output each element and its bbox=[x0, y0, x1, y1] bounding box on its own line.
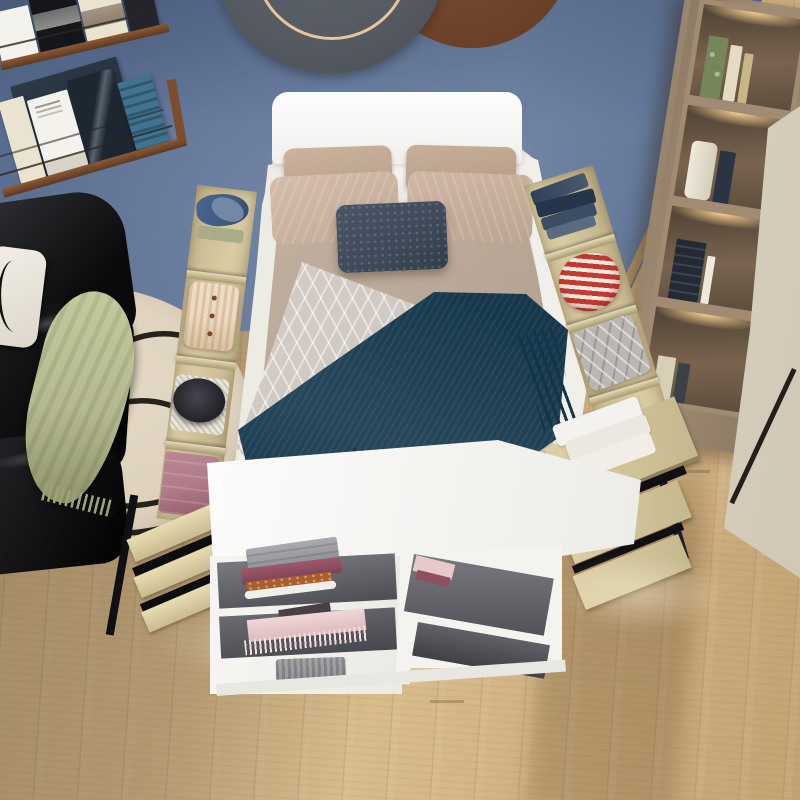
bookshelf-cubby bbox=[684, 0, 800, 117]
plank-seam bbox=[430, 700, 464, 703]
cardigan-button bbox=[211, 295, 217, 301]
pillow-line-art bbox=[0, 260, 32, 333]
cabinet-shelf bbox=[219, 607, 397, 658]
bedroom-scene bbox=[0, 0, 800, 800]
compartment-divider bbox=[176, 355, 237, 370]
copper-ring bbox=[254, 0, 410, 40]
navy-cushion bbox=[336, 201, 449, 274]
foot-cabinet-right-module bbox=[410, 546, 562, 668]
cardigan-button bbox=[209, 313, 215, 319]
knit-cardigan bbox=[183, 281, 241, 353]
book-row bbox=[690, 26, 800, 111]
under-drawer-light bbox=[556, 556, 726, 631]
book-row bbox=[658, 227, 770, 312]
cardigan-button bbox=[207, 331, 213, 337]
sage-folded-item bbox=[197, 225, 244, 244]
book-title-text bbox=[35, 100, 61, 109]
cabinet-shelf bbox=[217, 553, 397, 608]
